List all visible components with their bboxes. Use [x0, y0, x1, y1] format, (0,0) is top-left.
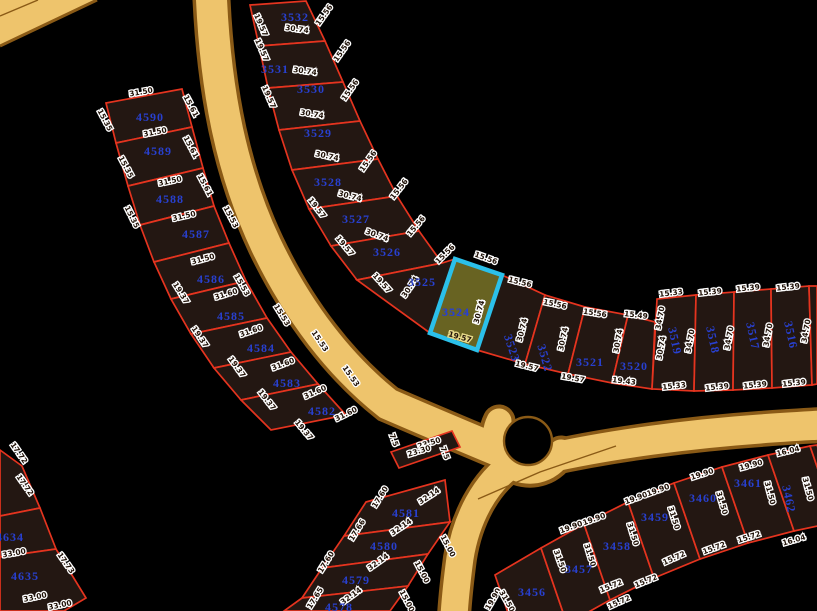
lot-number-4588: 4588 — [156, 192, 184, 206]
lot-number-3457: 3457 — [565, 562, 593, 576]
lot-number-3459: 3459 — [641, 510, 669, 524]
culdesac-island — [504, 417, 552, 465]
lot-number-3456: 3456 — [518, 585, 546, 599]
lot-number-4578: 4578 — [325, 600, 353, 611]
lot-number-4580: 4580 — [370, 539, 398, 553]
map-viewport[interactable]: 352430.7419.57 30.7430.7430.7430.7430.74… — [0, 0, 817, 611]
lot-number-3530: 3530 — [297, 82, 325, 96]
lot-number-4634: 4634 — [0, 530, 24, 544]
lot-number-3520: 3520 — [620, 359, 648, 373]
lot-number-3531: 3531 — [261, 62, 289, 76]
lot-number-3528: 3528 — [314, 175, 342, 189]
lot-number-3527: 3527 — [342, 212, 370, 226]
lot-number-3525: 3525 — [408, 275, 436, 289]
lot-number-4587: 4587 — [182, 227, 210, 241]
lot-number-3458: 3458 — [603, 539, 631, 553]
lot-number-4581: 4581 — [392, 506, 420, 520]
lot-number-4585: 4585 — [217, 309, 245, 323]
parcel-map-canvas[interactable]: 352430.7419.57 30.7430.7430.7430.7430.74… — [0, 0, 817, 611]
lot-number-4586: 4586 — [197, 272, 225, 286]
lot-number-4590: 4590 — [136, 110, 164, 124]
lot-number-4582: 4582 — [308, 404, 336, 418]
lot-number-4584: 4584 — [247, 341, 275, 355]
lot-number-3529: 3529 — [304, 126, 332, 140]
lot-number-3526: 3526 — [373, 245, 401, 259]
lot-number-3460: 3460 — [689, 491, 717, 505]
lot-number-4583: 4583 — [273, 376, 301, 390]
lot-number-4589: 4589 — [144, 144, 172, 158]
lot-number-3524: 3524 — [442, 305, 470, 319]
lot-number-4635: 4635 — [11, 569, 39, 583]
lot-number-4579: 4579 — [342, 573, 370, 587]
lot-number-3532: 3532 — [281, 10, 309, 24]
lot-number-3461: 3461 — [734, 476, 762, 490]
lot-number-3521: 3521 — [576, 355, 604, 369]
